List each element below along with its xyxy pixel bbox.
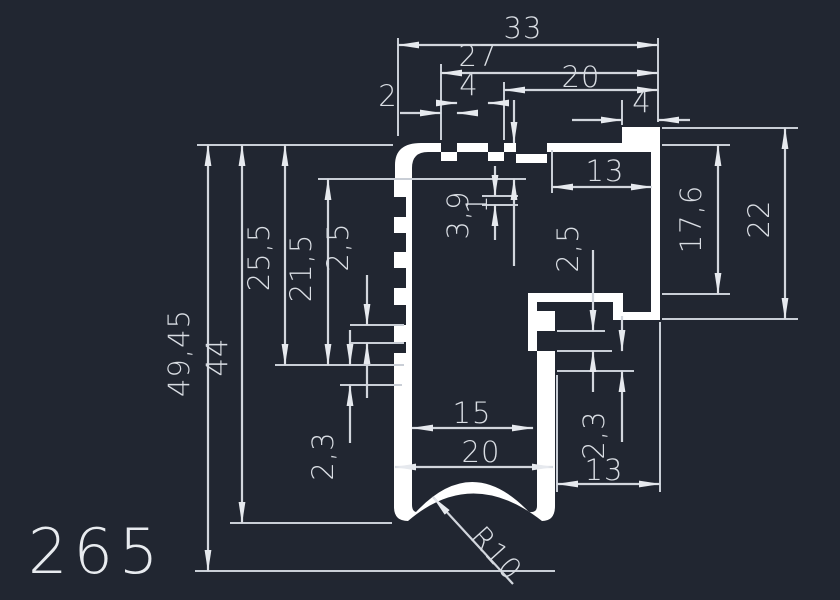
dim-label-r10: R10: [464, 520, 529, 587]
dim-label-2-notch: 2: [378, 79, 397, 113]
dim-label-2-5-left: 2,5: [321, 222, 355, 271]
dim-label-4-groove: 4: [459, 68, 478, 102]
dim-label-13-bottom: 13: [585, 453, 624, 487]
cad-drawing-viewport: 33 27 20 4 2 4 13 3,9 1 2,5 17,6 22 25,5…: [0, 0, 840, 600]
dim-label-15: 15: [453, 396, 492, 430]
dim-label-2-3-left: 2,3: [306, 431, 340, 480]
dim-label-1: 1: [460, 194, 494, 213]
part-number: 265: [28, 515, 164, 588]
dim-label-17-6: 17,6: [674, 185, 708, 254]
dim-label-25-5: 25,5: [242, 223, 276, 292]
dim-label-4-tab: 4: [632, 85, 651, 119]
dim-label-20-bottom: 20: [462, 435, 501, 469]
cad-canvas: 33 27 20 4 2 4 13 3,9 1 2,5 17,6 22 25,5…: [0, 0, 840, 600]
dim-label-2-5-right: 2,5: [551, 223, 585, 272]
dim-label-44: 44: [200, 338, 234, 377]
dim-label-33: 33: [504, 11, 543, 45]
dim-label-22: 22: [742, 200, 776, 239]
dimension-labels: 33 27 20 4 2 4 13 3,9 1 2,5 17,6 22 25,5…: [162, 11, 776, 587]
dim-label-13-top: 13: [586, 154, 625, 188]
dim-label-49-45: 49,45: [162, 309, 196, 397]
dim-label-20-top: 20: [562, 60, 601, 94]
dim-label-21-5: 21,5: [284, 234, 318, 303]
